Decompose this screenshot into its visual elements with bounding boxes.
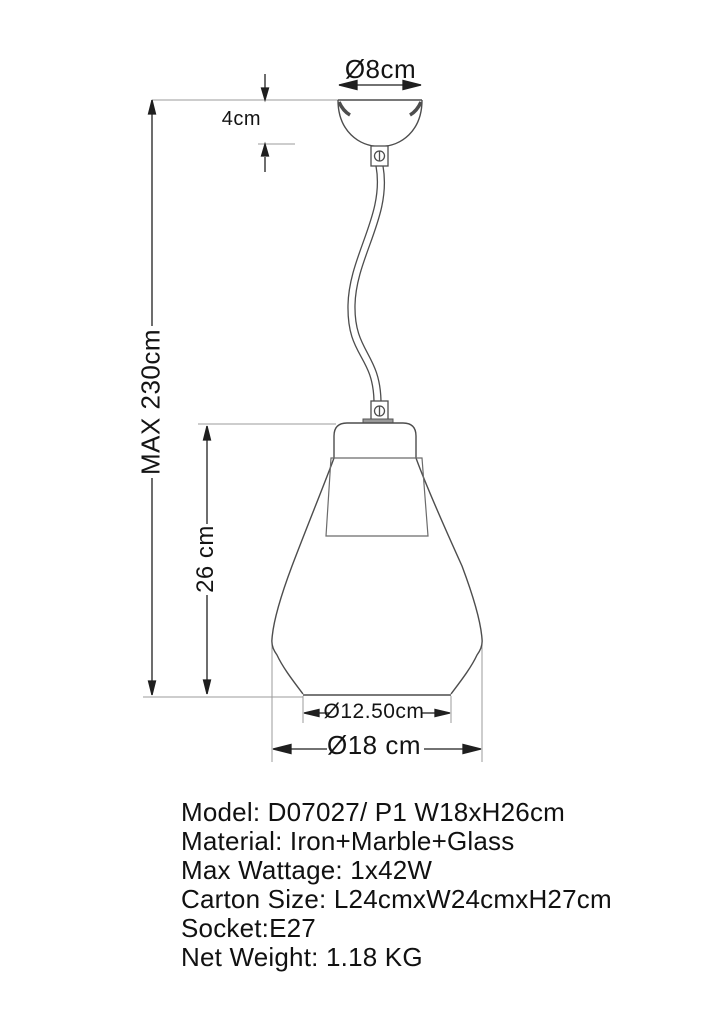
spec-block: Model: D07027/ P1 W18xH26cm Material: Ir… [181,798,612,972]
max-height-label: MAX 230cm [136,329,167,475]
spec-material: Material: Iron+Marble+Glass [181,827,612,856]
spec-socket: Socket:E27 [181,914,612,943]
shade-top-cap [334,423,416,458]
ceiling-canopy [338,100,422,147]
opening-diameter-label: Ø12.50cm [294,700,454,724]
canopy-diameter-label: Ø8cm [320,54,441,85]
dimension-lines [149,74,482,754]
shade-height-label: 26 cm [192,525,220,593]
shade-right-profile [416,458,482,694]
cord-left-edge [348,166,377,401]
spec-model: Model: D07027/ P1 W18xH26cm [181,798,612,827]
dimension-drawing: Ø8cm 4cm MAX 230cm 26 cm Ø12.50cm Ø18 cm… [0,0,720,1018]
dim-canopy-height [262,74,269,172]
spec-carton: Carton Size: L24cmxW24cmxH27cm [181,885,612,914]
spec-net-weight: Net Weight: 1.18 KG [181,943,612,972]
shade-diameter-label: Ø18 cm [294,730,454,761]
canopy-height-label: 4cm [201,108,261,131]
glass-shade-body [272,423,482,695]
cord-right-edge [355,166,384,401]
spec-wattage: Max Wattage: 1x42W [181,856,612,885]
extension-lines [143,100,482,762]
shade-left-profile [272,458,334,694]
cord-assembly [348,146,393,423]
inner-marble-shade [326,458,428,536]
